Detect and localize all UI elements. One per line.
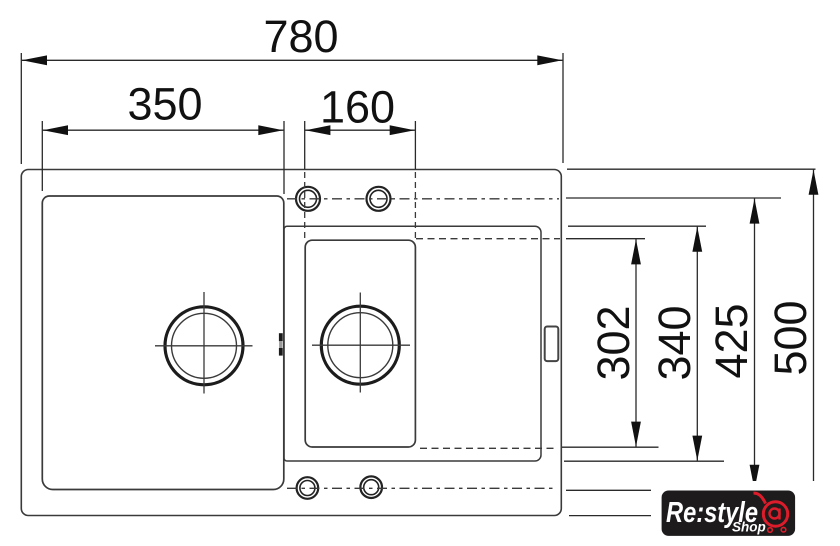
svg-text:Shop: Shop xyxy=(732,520,766,535)
svg-text:340: 340 xyxy=(649,305,700,380)
svg-text:780: 780 xyxy=(263,11,338,62)
svg-text:500: 500 xyxy=(765,300,816,375)
svg-text:350: 350 xyxy=(127,79,202,130)
svg-text:425: 425 xyxy=(706,303,757,378)
svg-text:302: 302 xyxy=(588,305,639,380)
svg-text:160: 160 xyxy=(320,82,395,133)
